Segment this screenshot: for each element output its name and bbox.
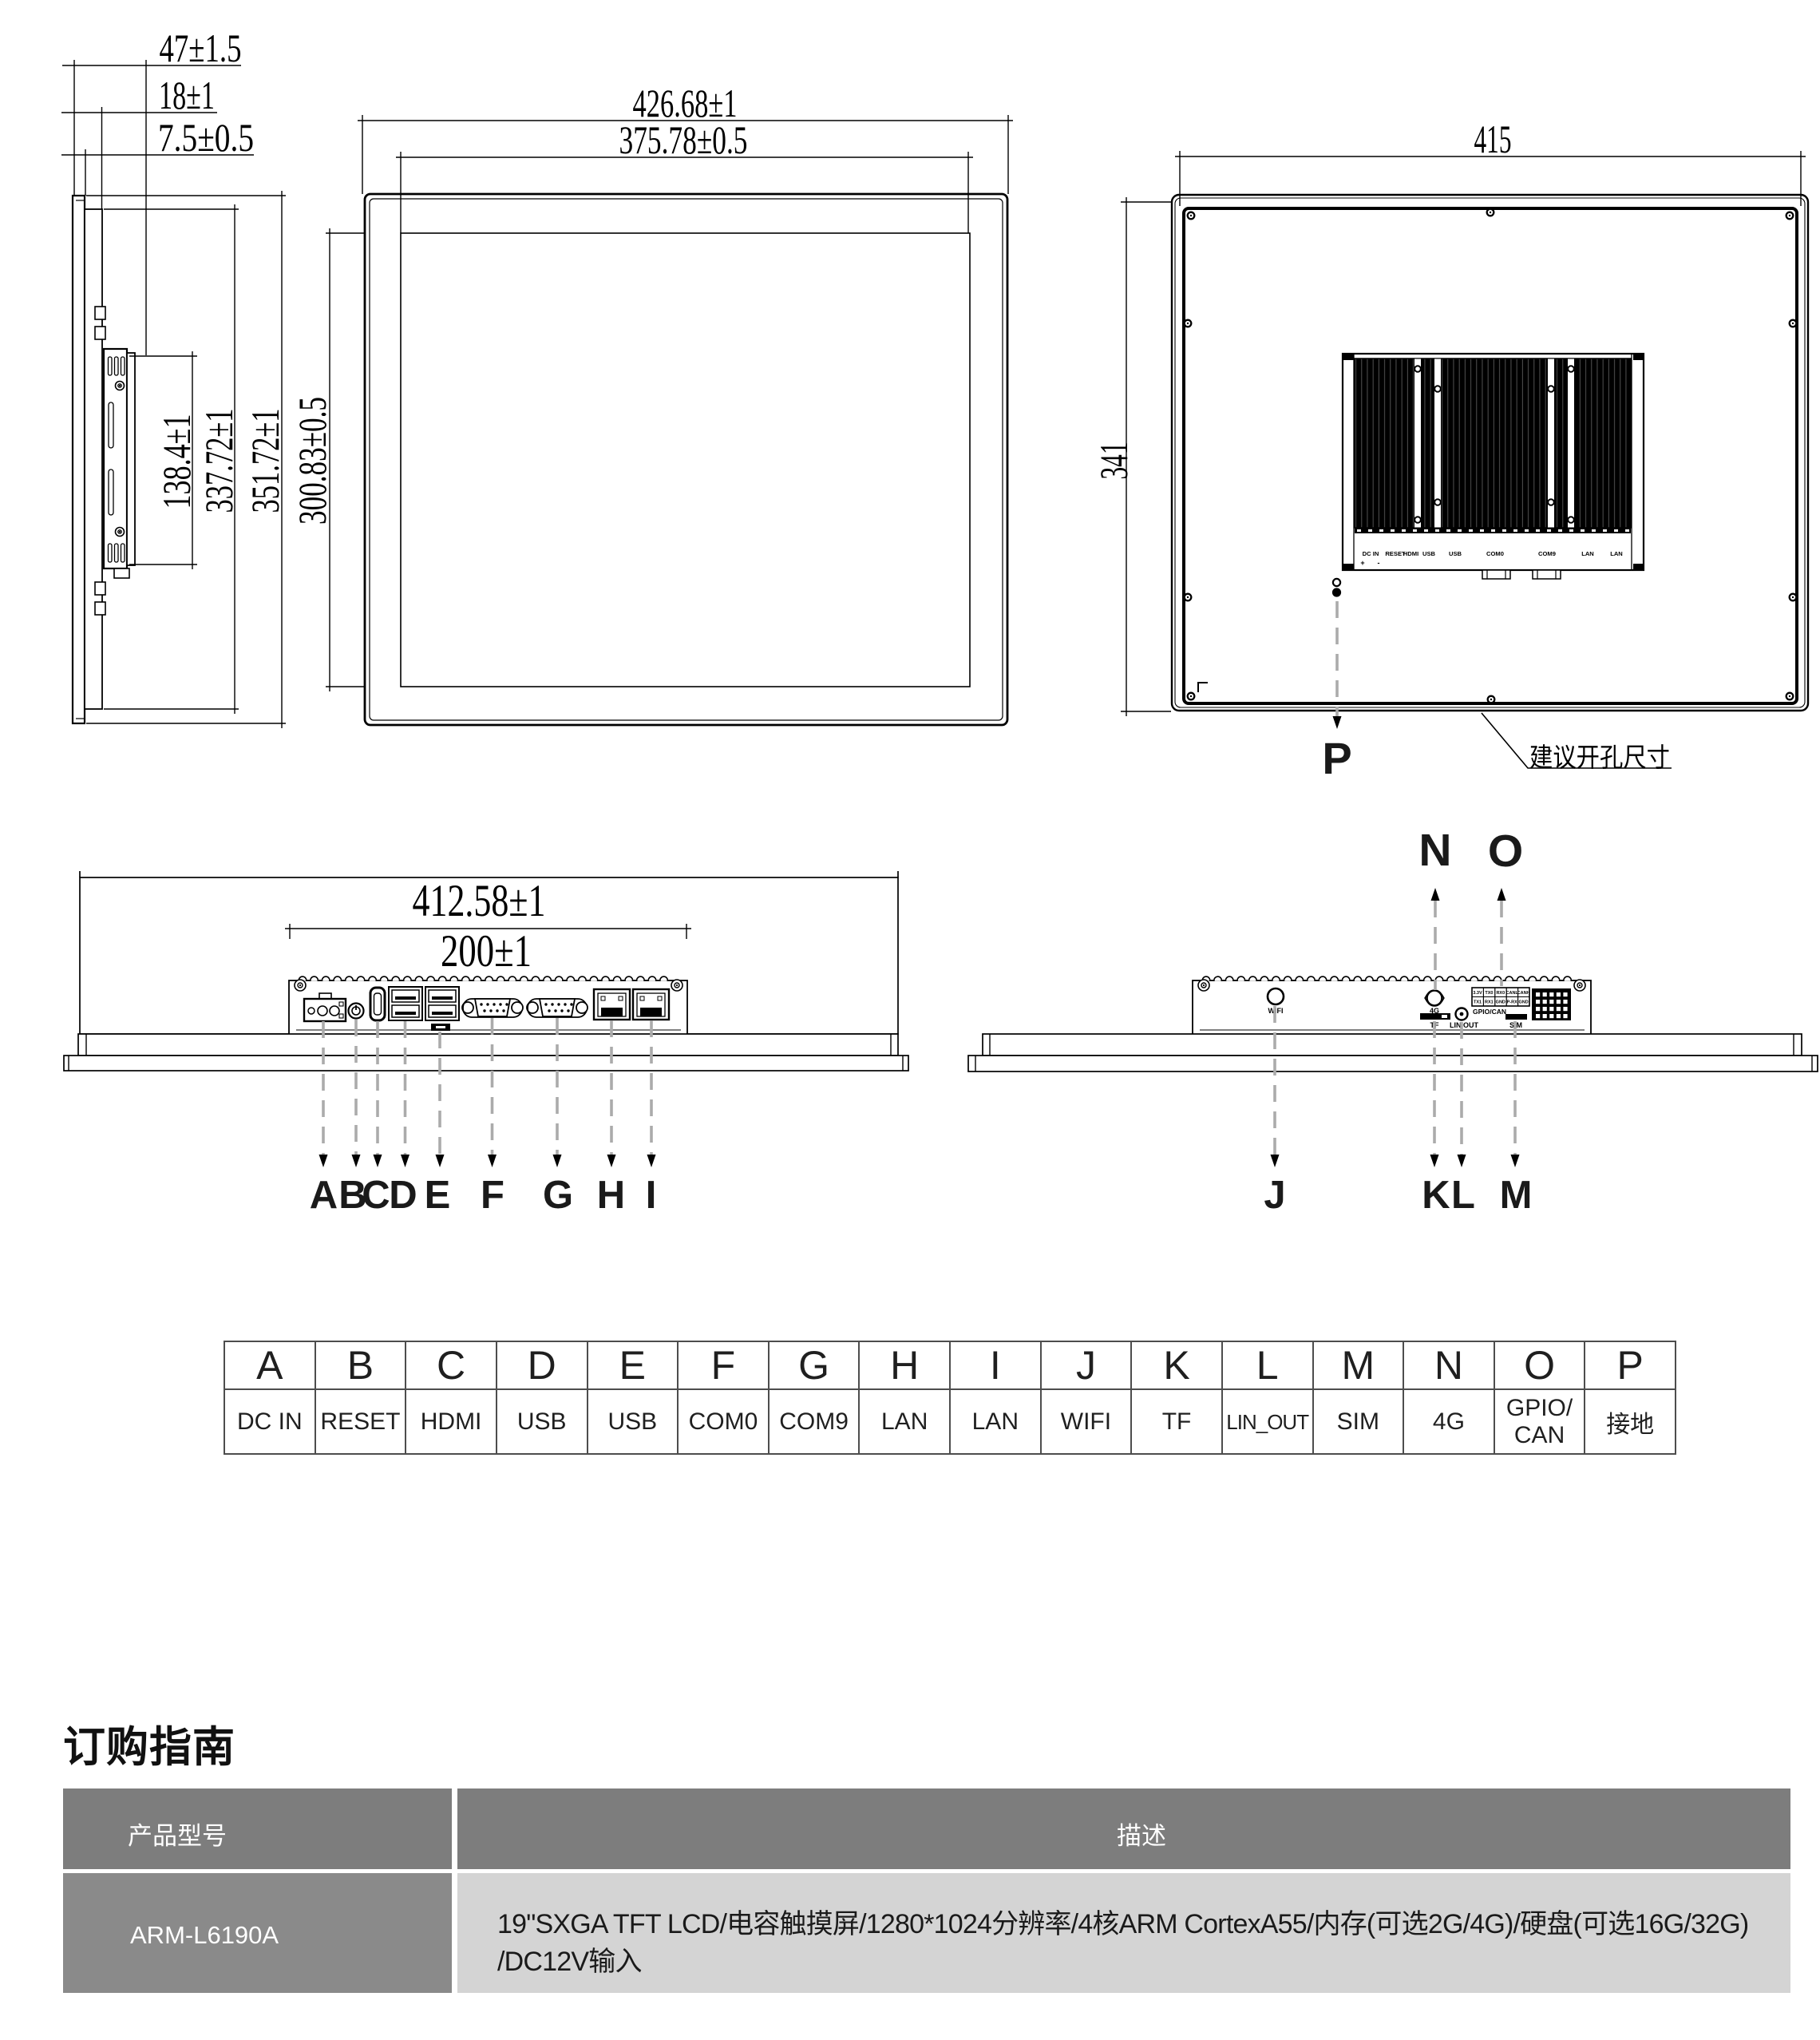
svg-text:N: N <box>1418 825 1451 876</box>
svg-text:LAN: LAN <box>1610 550 1623 557</box>
svg-text:C: C <box>362 1174 390 1217</box>
svg-text:375.78±0.5: 375.78±0.5 <box>619 117 748 162</box>
svg-text:A: A <box>310 1174 338 1217</box>
svg-text:F: F <box>481 1174 504 1217</box>
svg-text:RX1: RX1 <box>1485 1000 1494 1005</box>
svg-text:+: + <box>1360 559 1364 567</box>
svg-text:LAN: LAN <box>1581 550 1594 557</box>
svg-text:H: H <box>597 1174 625 1217</box>
svg-text:47±1.5: 47±1.5 <box>160 26 242 70</box>
svg-text:建议开孔尺寸: 建议开孔尺寸 <box>1529 743 1670 772</box>
svg-text:USB: USB <box>1422 550 1436 557</box>
svg-text:P-RX: P-RX <box>1507 1000 1517 1005</box>
svg-text:-: - <box>1378 559 1380 567</box>
svg-text:18±1: 18±1 <box>159 73 215 117</box>
svg-text:412.58±1: 412.58±1 <box>413 876 546 926</box>
svg-text:7.5±0.5: 7.5±0.5 <box>158 115 254 160</box>
svg-text:DC IN: DC IN <box>1363 550 1379 557</box>
svg-text:CANH: CANH <box>1517 991 1530 996</box>
svg-text:G: G <box>543 1174 573 1217</box>
svg-text:COM9: COM9 <box>1538 550 1556 557</box>
svg-text:TX1: TX1 <box>1474 1000 1482 1005</box>
svg-text:337.72±1: 337.72±1 <box>196 409 241 513</box>
svg-text:351.72±1: 351.72±1 <box>243 409 287 513</box>
svg-text:L: L <box>1451 1174 1475 1217</box>
svg-text:3.3V: 3.3V <box>1473 991 1482 996</box>
svg-text:I: I <box>646 1174 657 1217</box>
svg-text:USB: USB <box>1449 550 1462 557</box>
svg-text:RX0: RX0 <box>1496 991 1505 996</box>
svg-text:300.83±0.5: 300.83±0.5 <box>290 397 334 525</box>
svg-text:O: O <box>1488 826 1523 877</box>
svg-text:P: P <box>1322 733 1351 783</box>
svg-text:415: 415 <box>1474 117 1512 161</box>
svg-text:TX0: TX0 <box>1485 991 1493 996</box>
svg-text:138.4±1: 138.4±1 <box>154 414 199 509</box>
svg-text:E: E <box>425 1174 451 1217</box>
svg-text:GND: GND <box>1496 1000 1505 1005</box>
svg-text:K: K <box>1422 1174 1450 1217</box>
svg-text:LIN OUT: LIN OUT <box>1450 1021 1478 1029</box>
svg-text:COM0: COM0 <box>1486 550 1504 557</box>
svg-text:341: 341 <box>1091 442 1136 480</box>
svg-text:D: D <box>389 1174 417 1217</box>
svg-text:GND: GND <box>1518 1000 1528 1005</box>
svg-text:J: J <box>1264 1174 1285 1217</box>
svg-text:M: M <box>1500 1174 1533 1217</box>
svg-text:HDMI: HDMI <box>1403 550 1418 557</box>
svg-text:GPIO/CAN: GPIO/CAN <box>1473 1008 1506 1016</box>
svg-text:200±1: 200±1 <box>441 926 532 976</box>
